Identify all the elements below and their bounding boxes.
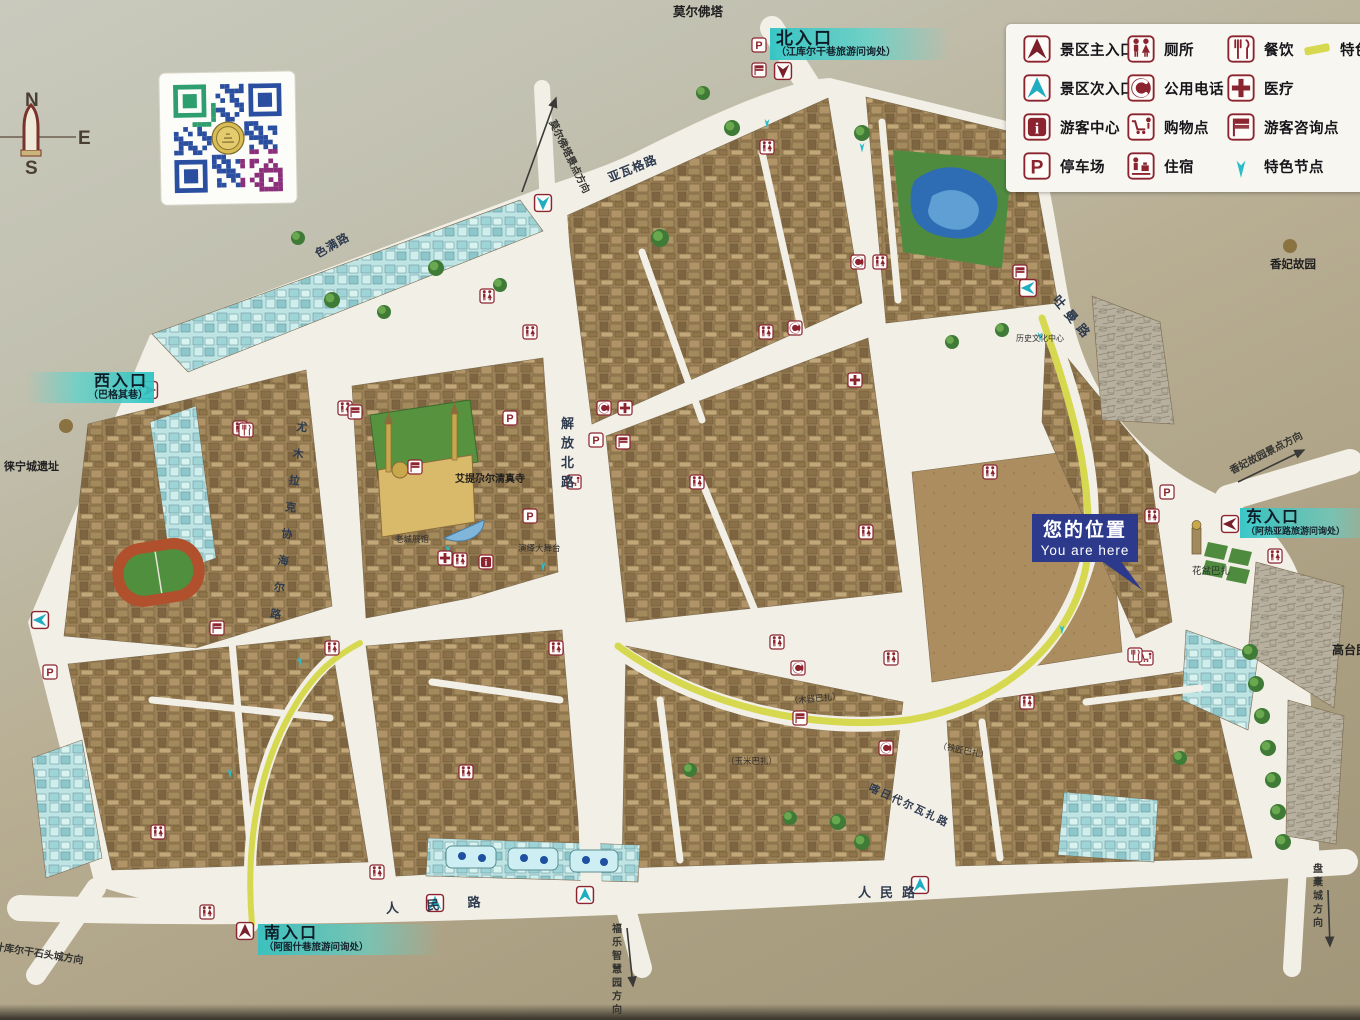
tree <box>1265 772 1281 788</box>
badge-toilet <box>1020 695 1034 709</box>
legend-item-info-point: 游客咨询点 <box>1226 112 1339 142</box>
map-label: 花盆巴扎 <box>1192 565 1231 577</box>
badge-phone <box>597 401 611 415</box>
route-icon <box>1302 35 1332 63</box>
svg-text:i: i <box>1035 120 1040 137</box>
badge-phone <box>788 321 802 335</box>
map-label: 徕宁城遗址 <box>4 459 59 473</box>
legend-label: 厕所 <box>1164 39 1194 60</box>
west-entrance-banner: 西入口 （巴格其巷） <box>26 372 154 403</box>
tree <box>995 323 1009 337</box>
badge-toilet <box>151 825 165 839</box>
tree <box>651 229 669 247</box>
lodging-icon <box>1126 152 1156 180</box>
svg-text:P: P <box>46 667 53 679</box>
north-entrance-title: 北入口 <box>776 30 944 48</box>
badge-toilet <box>523 325 537 339</box>
svg-text:P: P <box>1163 487 1170 499</box>
badge-toilet <box>200 905 214 919</box>
map-label: 香妃故园 <box>1269 257 1316 271</box>
badge-toilet <box>690 475 704 489</box>
legend-item-dining: 餐饮 <box>1226 34 1294 64</box>
compass-e: E <box>78 128 91 149</box>
badge-toilet <box>884 651 898 665</box>
visitor-center-icon: i <box>1022 113 1052 141</box>
legend-label: 景区主入口 <box>1060 39 1135 60</box>
badge-toilet <box>770 635 784 649</box>
legend-panel: 景区主入口景区次入口i游客中心P停车场厕所公用电话购物点住宿餐饮医疗游客咨询点特… <box>1006 24 1360 192</box>
svg-text:P: P <box>592 435 599 447</box>
badge-parking: P <box>523 509 537 523</box>
entrance-main-icon <box>1022 35 1052 63</box>
south-entrance-title: 南入口 <box>264 926 434 943</box>
badge-info-point <box>210 621 224 635</box>
badge-toilet <box>370 865 384 879</box>
east-entrance-subtitle: （阿热亚路旅游问询处） <box>1246 527 1360 536</box>
map-label: 老城展馆 <box>395 534 429 544</box>
tree <box>783 811 797 825</box>
legend-label: 游客咨询点 <box>1264 117 1339 138</box>
legend-item-feature-node: 特色节点 <box>1226 151 1324 181</box>
badge-entrance-main <box>1222 516 1239 533</box>
district <box>1058 792 1158 862</box>
legend-item-medical: 医疗 <box>1226 73 1294 103</box>
badge-toilet <box>760 140 774 154</box>
map-label: 莫尔佛塔 <box>673 4 724 19</box>
badge-toilet <box>1268 549 1282 563</box>
badge-parking: P <box>503 411 517 425</box>
badge-phone <box>791 661 805 675</box>
dining-icon <box>1226 35 1256 63</box>
tree <box>724 120 740 136</box>
map-board: PPPPPPi莫尔佛塔莫尔佛塔景点方向亚瓦格路色满路香妃故园吐曼路徕宁城遗址解放… <box>0 0 1360 1020</box>
legend-label: 购物点 <box>1164 117 1209 138</box>
svg-text:P: P <box>526 511 533 523</box>
legend-item-lodging: 住宿 <box>1126 151 1194 181</box>
compass: N E S <box>0 90 91 179</box>
badge-parking: P <box>43 665 57 679</box>
map-label: 色满路 <box>313 230 352 261</box>
medical-icon <box>1226 74 1256 102</box>
tree <box>1260 740 1276 756</box>
svg-text:P: P <box>755 40 762 52</box>
legend-label: 停车场 <box>1060 156 1105 177</box>
legend-item-entrance-main: 景区主入口 <box>1022 34 1135 64</box>
park-pond <box>893 150 1012 268</box>
tree <box>291 231 305 245</box>
tree <box>1254 708 1270 724</box>
legend-label: 医疗 <box>1264 78 1294 99</box>
pools <box>446 846 618 872</box>
badge-entrance-secondary <box>32 612 49 629</box>
badge-entrance-main <box>237 923 254 940</box>
svg-text:P: P <box>1031 156 1044 178</box>
tree <box>1275 834 1291 850</box>
tree <box>945 335 959 349</box>
idkah-mosque <box>370 400 484 541</box>
legend-label: 特色 <box>1340 39 1360 60</box>
map-label: 演绎大舞台 <box>518 543 561 553</box>
poi-dot <box>1283 239 1297 253</box>
badge-parking: P <box>589 433 603 447</box>
entrance-secondary-icon <box>1022 74 1052 102</box>
legend-label: 景区次入口 <box>1060 78 1135 99</box>
badge-toilet <box>549 641 563 655</box>
badge-info-point <box>752 63 766 77</box>
badge-toilet <box>459 765 473 779</box>
parking-icon: P <box>1022 152 1052 180</box>
tree <box>683 763 697 777</box>
badge-medical <box>618 401 632 415</box>
badge-toilet <box>859 525 873 539</box>
east-entrance-banner: 东入口 （阿热亚路旅游问询处） <box>1240 508 1360 538</box>
south-entrance-banner: 南入口 （阿图什巷旅游问询处） <box>258 924 440 955</box>
legend-item-parking: P停车场 <box>1022 151 1105 181</box>
badge-parking: P <box>1160 485 1174 499</box>
poi-dot <box>59 419 73 433</box>
legend-item-toilet: 厕所 <box>1126 34 1194 64</box>
north-entrance-subtitle: （江库尔干巷旅游问询处） <box>776 48 944 59</box>
tree <box>1242 644 1258 660</box>
badge-toilet <box>1145 509 1159 523</box>
badge-dining <box>239 423 253 437</box>
badge-entrance-secondary <box>1020 280 1037 297</box>
map-label: 福乐智慧园方向 <box>611 922 622 1016</box>
east-entrance-title: 东入口 <box>1246 510 1360 527</box>
badge-info-point <box>793 711 807 725</box>
badge-info-point <box>408 460 422 474</box>
badge-toilet <box>983 465 997 479</box>
qr-code <box>159 71 297 205</box>
badge-toilet <box>480 289 494 303</box>
badge-toilet <box>873 255 887 269</box>
legend-item-route: 特色 <box>1302 34 1360 64</box>
district <box>366 630 582 876</box>
map-label: 盘橐城方向 <box>1312 862 1324 929</box>
tree <box>830 814 846 830</box>
legend-item-phone: 公用电话 <box>1126 73 1224 103</box>
map-label: （玉米巴扎） <box>726 756 777 766</box>
badge-medical <box>848 373 862 387</box>
legend-item-visitor-center: i游客中心 <box>1022 112 1120 142</box>
badge-info-point <box>348 405 362 419</box>
badge-entrance-secondary <box>535 195 552 212</box>
north-entrance-banner: 北入口 （江库尔干巷旅游问询处） <box>770 28 950 60</box>
badge-entrance-secondary <box>577 887 594 904</box>
tree <box>854 834 870 850</box>
district <box>1092 296 1174 424</box>
svg-text:P: P <box>506 413 513 425</box>
toilet-icon <box>1126 35 1156 63</box>
badge-toilet <box>325 641 339 655</box>
feature-node-icon <box>1226 152 1256 180</box>
badge-info-point <box>616 435 630 449</box>
legend-label: 餐饮 <box>1264 39 1294 60</box>
legend-item-entrance-secondary: 景区次入口 <box>1022 73 1135 103</box>
direction-arrow <box>1328 890 1330 946</box>
you-are-here-en: You are here <box>1041 543 1130 558</box>
district <box>1286 700 1344 844</box>
badge-dining <box>1128 648 1142 662</box>
you-are-here-zh: 您的位置 <box>1043 518 1127 541</box>
compass-s: S <box>25 158 38 179</box>
badge-phone <box>879 741 893 755</box>
shopping-icon <box>1126 113 1156 141</box>
tree <box>493 278 507 292</box>
south-entrance-subtitle: （阿图什巷旅游问询处） <box>264 943 434 953</box>
tree <box>428 260 444 276</box>
tree <box>377 305 391 319</box>
badge-visitor-center: i <box>479 555 493 569</box>
badge-toilet <box>759 325 773 339</box>
map-label: 高台民居 <box>1332 642 1360 657</box>
legend-item-shopping: 购物点 <box>1126 112 1209 142</box>
west-entrance-subtitle: （巴格其巷） <box>32 391 148 402</box>
map-label: 历史文化中心 <box>1016 333 1064 343</box>
badge-medical <box>438 551 452 565</box>
tree <box>1248 676 1264 692</box>
badge-phone <box>851 255 865 269</box>
legend-label: 公用电话 <box>1164 78 1224 99</box>
info-point-icon <box>1226 113 1256 141</box>
tree <box>854 125 870 141</box>
tree <box>696 86 710 100</box>
tree <box>1173 751 1187 765</box>
badge-toilet <box>453 553 467 567</box>
legend-label: 住宿 <box>1164 156 1194 177</box>
legend-label: 特色节点 <box>1264 156 1324 177</box>
tree <box>1270 804 1286 820</box>
legend-label: 游客中心 <box>1060 117 1120 138</box>
badge-parking: P <box>752 38 766 52</box>
map-label: 艾提尕尔清真寺 <box>455 472 525 485</box>
west-entrance-title: 西入口 <box>32 374 148 391</box>
phone-icon <box>1126 74 1156 102</box>
map-label: 人民路 <box>858 885 924 900</box>
tree <box>324 292 340 308</box>
badge-entrance-main <box>775 63 792 80</box>
badge-info-point <box>1013 265 1027 279</box>
